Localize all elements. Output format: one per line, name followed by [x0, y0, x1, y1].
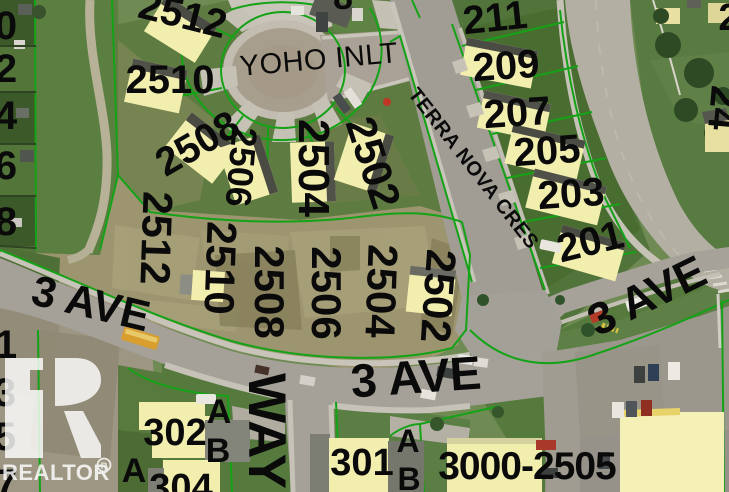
svg-text:2504: 2504 [356, 244, 406, 340]
svg-text:2: 2 [0, 47, 17, 91]
svg-text:3000-2505: 3000-2505 [438, 445, 616, 488]
svg-text:2506: 2506 [303, 246, 350, 339]
svg-text:A: A [122, 452, 147, 490]
svg-text:8: 8 [0, 200, 17, 244]
svg-text:R: R [101, 461, 108, 471]
svg-text:REALTOR: REALTOR [2, 460, 110, 485]
svg-text:2510: 2510 [195, 221, 245, 316]
svg-text:2: 2 [718, 0, 729, 39]
svg-text:2502: 2502 [412, 248, 465, 344]
svg-text:A: A [207, 393, 232, 431]
svg-text:205: 205 [512, 127, 582, 176]
svg-text:4: 4 [0, 94, 18, 138]
svg-text:2512: 2512 [131, 191, 181, 286]
svg-text:6: 6 [0, 144, 17, 188]
svg-text:304: 304 [149, 467, 212, 492]
svg-text:0: 0 [0, 4, 17, 48]
svg-text:211: 211 [461, 0, 530, 43]
svg-text:WAY: WAY [237, 373, 296, 489]
svg-text:3 AVE: 3 AVE [349, 346, 483, 408]
svg-text:2504: 2504 [289, 119, 338, 217]
svg-text:301: 301 [330, 442, 393, 484]
svg-text:2506: 2506 [218, 125, 266, 208]
svg-text:302: 302 [143, 412, 206, 454]
svg-text:A: A [396, 423, 419, 459]
svg-text:2508: 2508 [246, 245, 293, 338]
svg-text:8: 8 [333, 0, 353, 17]
svg-text:B: B [206, 432, 231, 470]
svg-text:2510: 2510 [126, 58, 215, 102]
svg-text:B: B [397, 461, 420, 492]
svg-text:24: 24 [699, 84, 729, 133]
svg-text:209: 209 [471, 42, 541, 91]
svg-text:203: 203 [536, 170, 606, 219]
